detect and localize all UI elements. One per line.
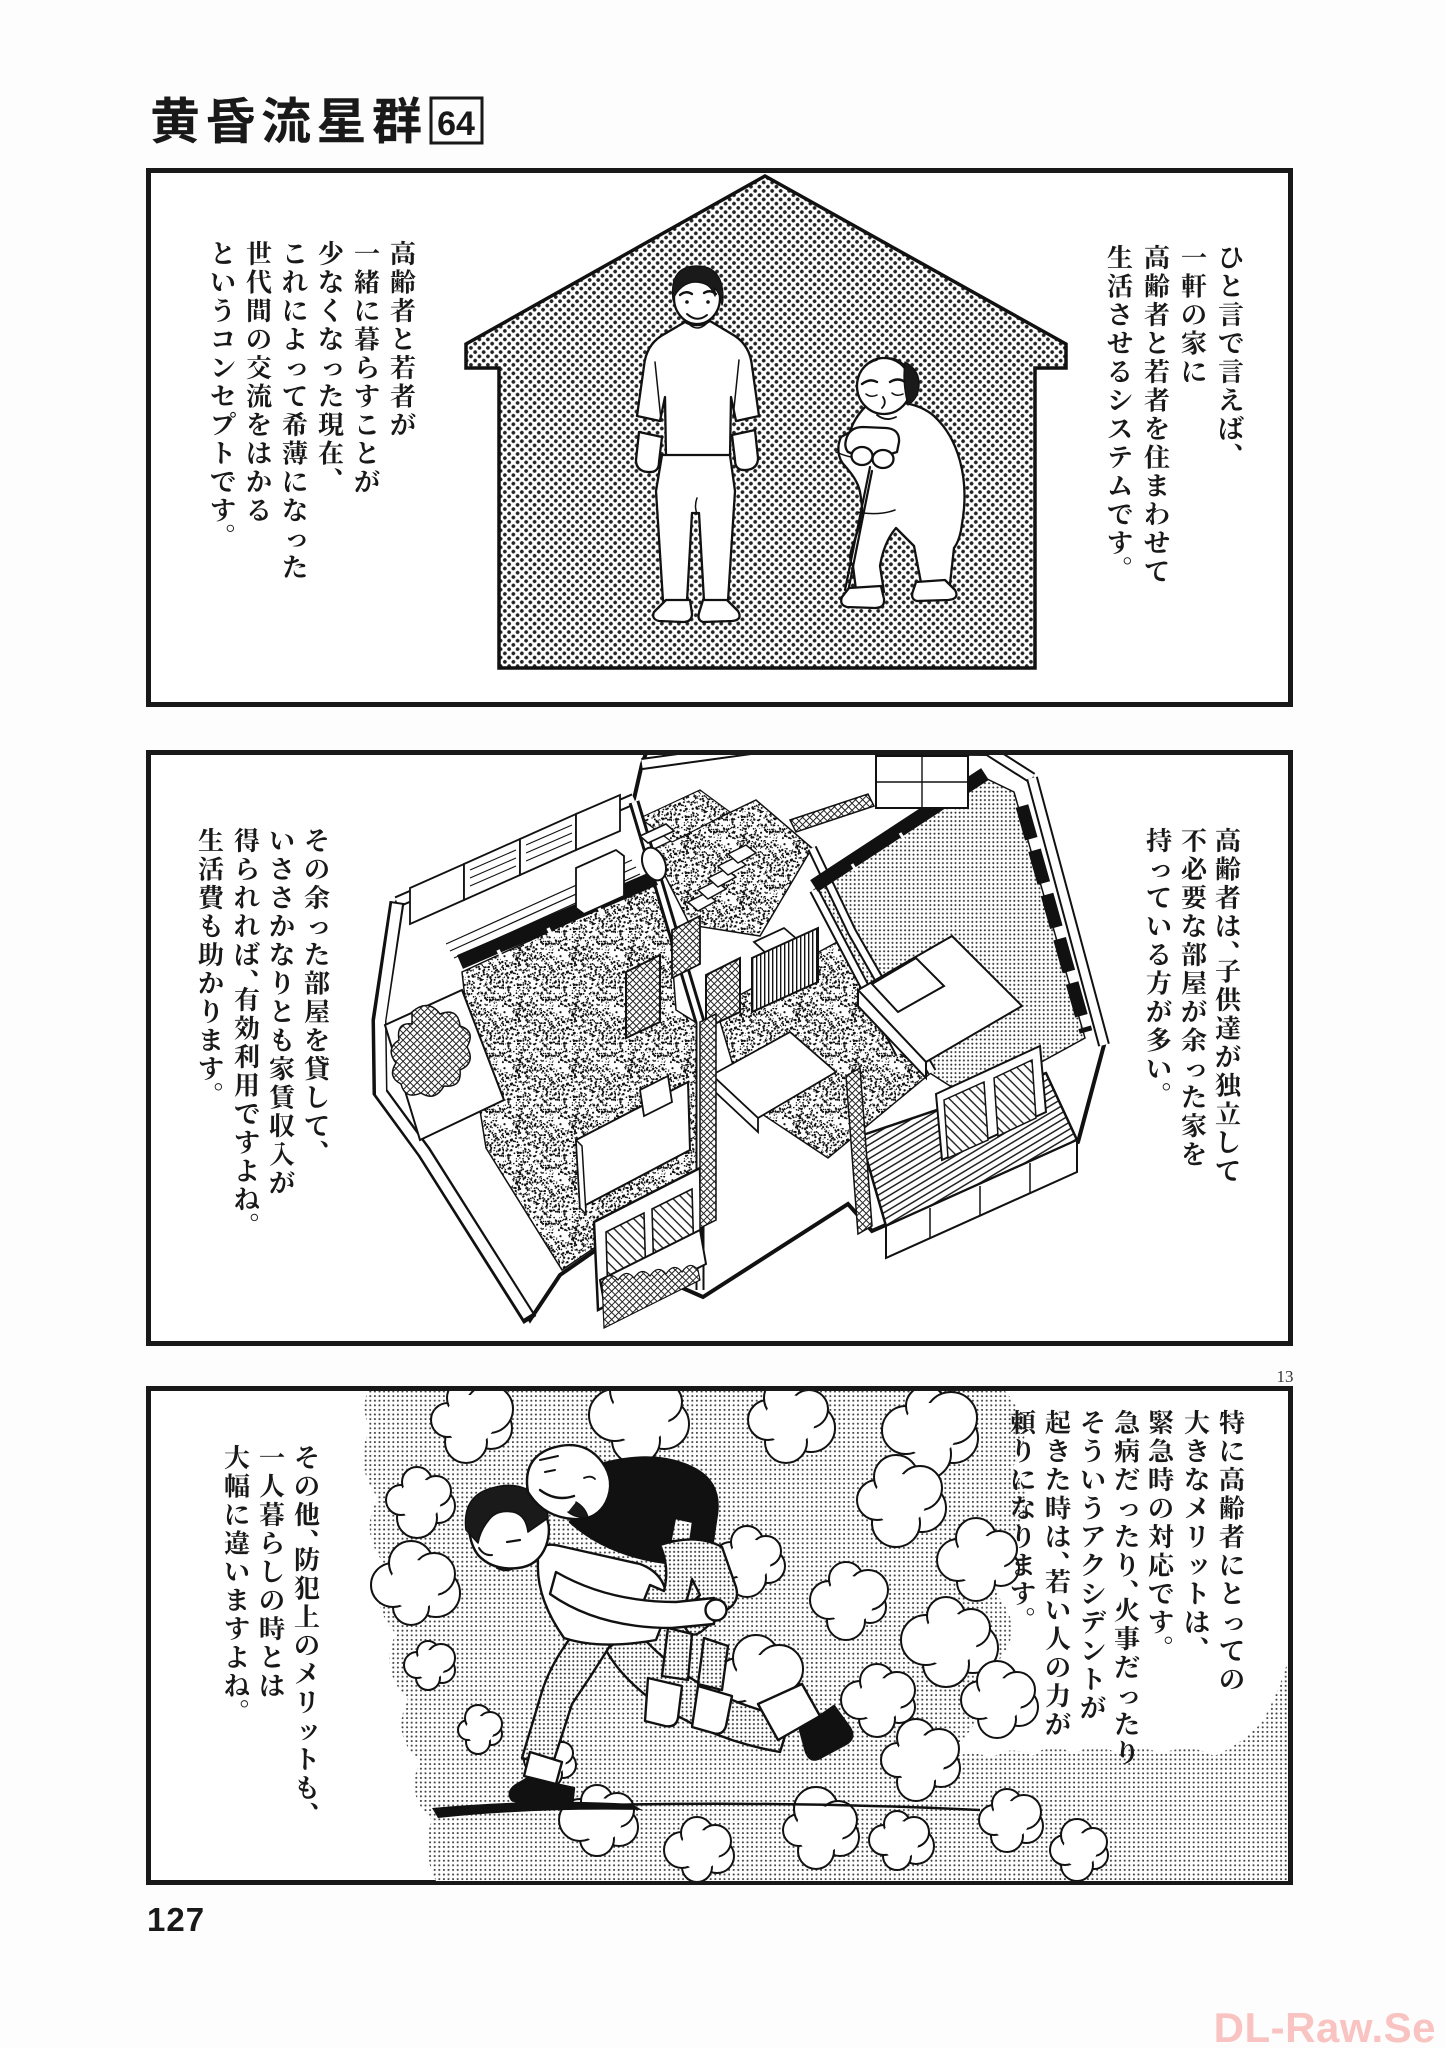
svg-text:64: 64	[437, 105, 475, 143]
svg-text:127: 127	[147, 1901, 205, 1938]
svg-text:13: 13	[1277, 1367, 1294, 1386]
svg-text:DL-Raw.Se: DL-Raw.Se	[1214, 2004, 1436, 2048]
